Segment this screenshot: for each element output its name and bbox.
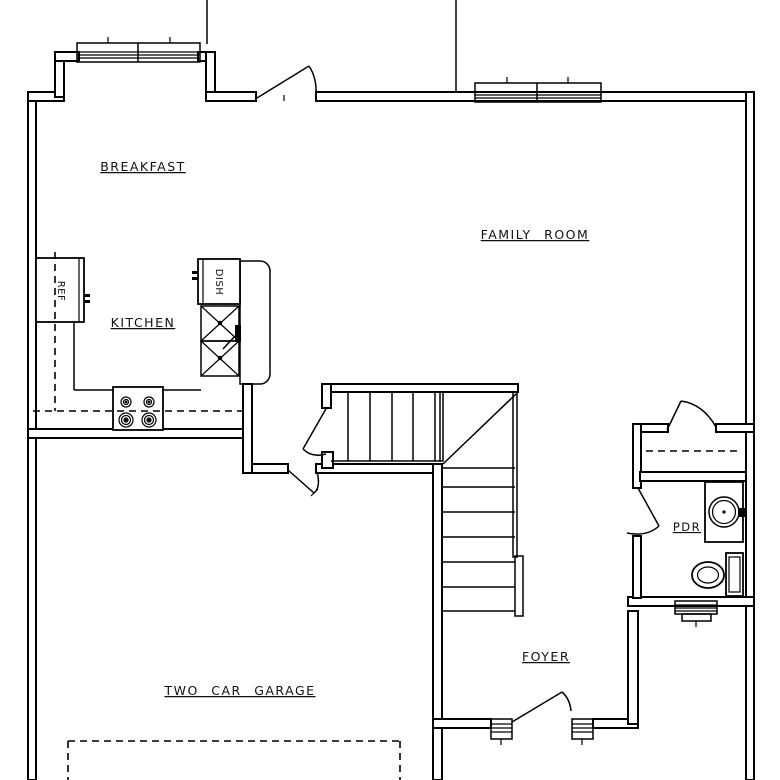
room-label-kitchen: KITCHEN: [111, 315, 176, 330]
wall-top-left-of-door: [206, 92, 256, 101]
door-leaf: [288, 470, 314, 493]
wall-bay-top-left: [55, 52, 79, 61]
door-leaf: [512, 692, 562, 722]
powder-room-door: [627, 488, 659, 534]
wall-front-left: [433, 719, 491, 728]
closet-door: [667, 401, 716, 430]
door-leaf: [667, 401, 681, 430]
refrigerator-handle: [84, 294, 90, 297]
toilet: [692, 553, 743, 596]
garage-door-outline: [68, 741, 400, 780]
powder-room-fixtures: [692, 482, 746, 596]
wall-pdr-left-stub: [633, 536, 641, 598]
appliance-label-refrigerator: REF: [55, 281, 66, 302]
toilet-bowl: [692, 562, 724, 588]
bay-window: [77, 37, 200, 62]
front-door-sidelight: [572, 719, 593, 739]
wall-garage-foyer: [433, 464, 442, 780]
front-door-sidelight: [491, 719, 512, 739]
door-swing-arc: [681, 401, 716, 427]
pdr-window-sill: [682, 614, 711, 621]
appliance-label-dishwasher: DISH: [213, 269, 224, 296]
front-entry-door: [491, 692, 593, 745]
stair-railing: [515, 556, 523, 616]
wall-peninsula-pier: [243, 384, 252, 473]
stair-winder-diagonal: [443, 394, 516, 464]
room-label-breakfast: BREAKFAST: [100, 159, 186, 174]
garage-entry-door: [288, 470, 318, 496]
door-leaf: [257, 66, 309, 98]
stair-side-door: [303, 407, 327, 455]
wall-stair-top: [322, 384, 518, 392]
door-leaf: [638, 488, 659, 526]
dishwasher-handle: [192, 277, 198, 280]
sink-drain: [722, 510, 725, 513]
floor-plan-page: BREAKFAST FAMILY ROOM KITCHEN TWO CAR GA…: [0, 0, 780, 780]
wall-top-family-room: [316, 92, 754, 101]
door-swing-arc: [627, 526, 659, 534]
wall-foyer-right: [628, 611, 638, 724]
door-swing-arc: [309, 66, 316, 95]
wall-hall-south-stub: [252, 464, 288, 473]
wall-closet-top-right: [716, 424, 754, 432]
kitchen-casework: [33, 252, 270, 430]
peninsula-counter: [240, 261, 270, 384]
door-swing-arc: [562, 692, 571, 711]
interior-walls: [28, 384, 754, 780]
room-label-garage: TWO CAR GARAGE: [163, 683, 315, 698]
wall-hall-south: [316, 464, 441, 473]
wall-stair-left-stub: [322, 384, 331, 408]
floor-plan-drawing: BREAKFAST FAMILY ROOM KITCHEN TWO CAR GA…: [0, 0, 780, 780]
stair-run-divider: [440, 392, 443, 461]
room-label-family-room: FAMILY ROOM: [481, 227, 590, 242]
room-label-foyer: FOYER: [522, 649, 570, 664]
stair-right-wall: [513, 392, 517, 557]
wall-right-exterior: [746, 92, 754, 780]
refrigerator-handle: [84, 300, 90, 303]
staircase: [331, 392, 523, 616]
dishwasher-handle: [192, 271, 198, 274]
rear-exterior-door: [257, 66, 316, 101]
door-leaf: [303, 407, 327, 449]
sink-faucet: [235, 325, 241, 342]
room-label-powder-room: PDR: [673, 520, 701, 534]
family-room-window: [475, 77, 601, 102]
wall-closet-pdr-divider: [640, 472, 746, 481]
powder-room-window: [675, 601, 717, 627]
kitchen-sink: [201, 306, 241, 376]
sink-faucet: [738, 508, 746, 517]
